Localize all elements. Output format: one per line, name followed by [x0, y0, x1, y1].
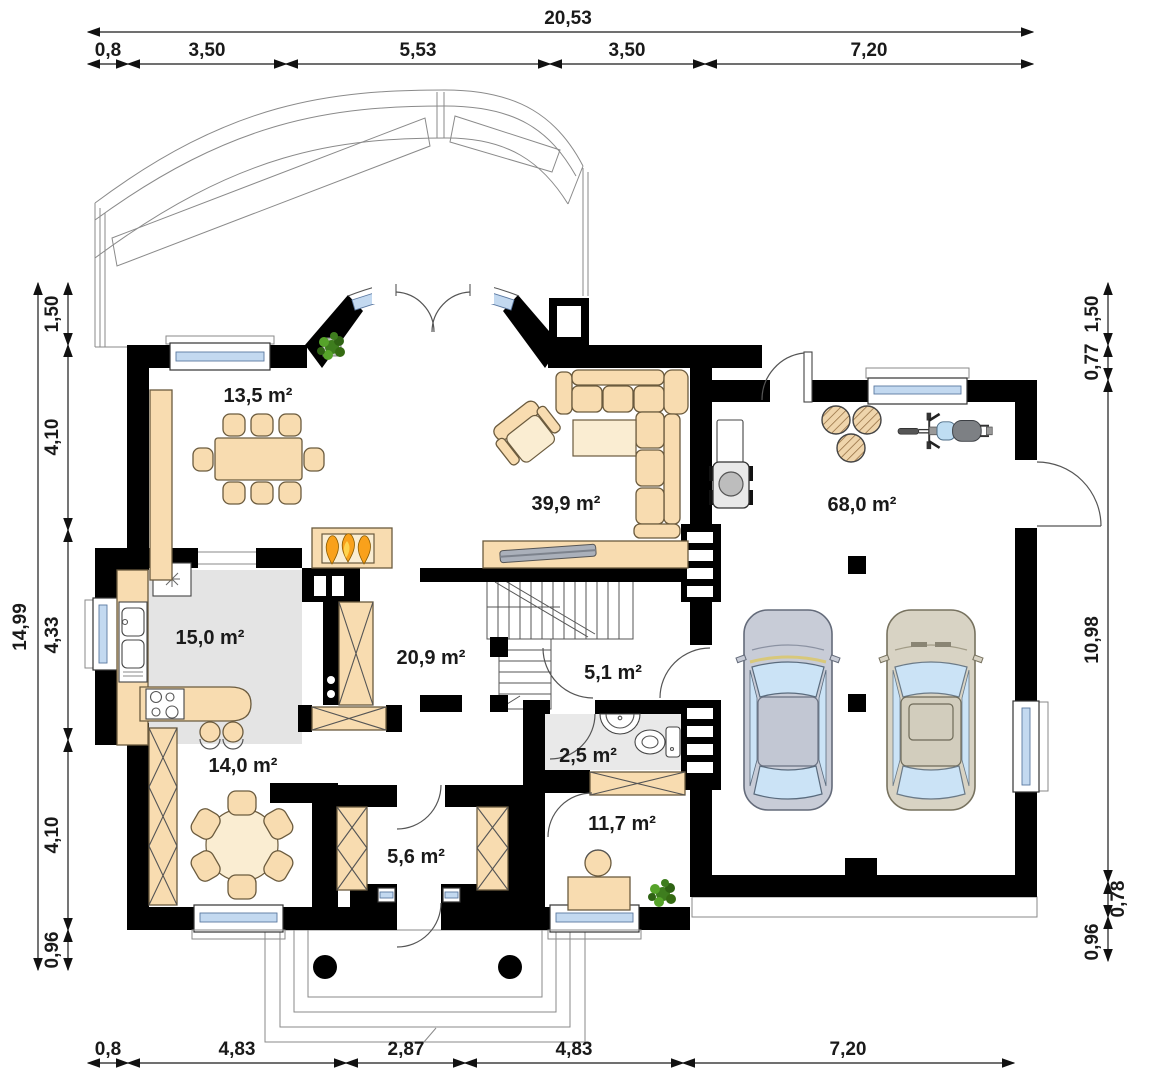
svg-text:0,96: 0,96: [1082, 924, 1103, 961]
window: [85, 598, 119, 670]
svg-text:4,83: 4,83: [219, 1039, 256, 1060]
pergola-roof-edge: [95, 90, 583, 266]
lawn-mower: [709, 420, 753, 508]
chair: [193, 448, 213, 471]
window: [866, 368, 969, 404]
svg-text:7,20: 7,20: [851, 40, 888, 61]
svg-text:3,50: 3,50: [609, 40, 646, 61]
svg-text:0,77: 0,77: [1082, 344, 1103, 381]
svg-text:5,53: 5,53: [400, 40, 437, 61]
floor-plan-svg: 13,5 m² 39,9 m² 68,0 m² 15,0 m² 20,9 m² …: [0, 0, 1158, 1080]
coffee-table: [573, 420, 636, 456]
chair: [279, 414, 301, 436]
dimensions-right: 1,50 0,77 10,98 0,78 0,96: [1082, 283, 1129, 961]
kitchen-peninsula: [140, 687, 251, 721]
sidelight-window: [378, 888, 395, 902]
dimensions-top: 20,53 0,8 3,50 5,53 3,50 7,20: [88, 8, 1033, 64]
chair: [251, 414, 273, 436]
wardrobe: [590, 772, 685, 795]
room-label-dining: 13,5 m²: [224, 385, 293, 407]
garage-column: [848, 694, 866, 712]
wardrobe: [337, 807, 367, 890]
svg-text:2,87: 2,87: [388, 1039, 425, 1060]
svg-text:1,50: 1,50: [1082, 296, 1103, 333]
garage-exterior-door: [1037, 462, 1101, 526]
bedroom-furniture: [188, 791, 296, 899]
dimensions-left: 14,99 1,50 4,10 4,33 4,10 0,96: [10, 283, 68, 970]
svg-text:4,10: 4,10: [42, 419, 63, 456]
room-label-garage: 68,0 m²: [828, 494, 897, 516]
stool: [200, 722, 220, 742]
room-label-corridor: 5,1 m²: [584, 662, 642, 684]
svg-text:7,20: 7,20: [830, 1039, 867, 1060]
svg-text:0,8: 0,8: [95, 1039, 121, 1060]
svg-text:3,50: 3,50: [189, 40, 226, 61]
chair: [223, 414, 245, 436]
porch-steps: [265, 930, 585, 1042]
wardrobe: [477, 807, 508, 890]
sideboard: [150, 390, 172, 580]
room-label-living: 39,9 m²: [532, 493, 601, 515]
car-gray: [736, 610, 840, 810]
kitchen-sink: [119, 602, 147, 682]
motorcycle: [898, 413, 992, 449]
office-furniture: [568, 850, 630, 910]
firewood-stack: [837, 434, 865, 462]
window: [166, 336, 274, 370]
garage-contents: [709, 406, 992, 810]
svg-text:4,10: 4,10: [42, 817, 63, 854]
porch-column: [313, 955, 337, 979]
dim-top-total: 20,53: [544, 8, 592, 29]
svg-text:0,96: 0,96: [42, 932, 63, 969]
room-label-office: 11,7 m²: [588, 813, 656, 835]
plant-icon: [648, 879, 676, 907]
chair: [228, 791, 256, 815]
svg-text:1,50: 1,50: [42, 296, 63, 333]
garage-column: [848, 556, 866, 574]
armchair: [487, 395, 565, 471]
stool: [223, 722, 243, 742]
chair: [223, 482, 245, 504]
garage-side-door: [660, 648, 710, 698]
window: [1013, 701, 1048, 792]
room-label-hall: 20,9 m²: [397, 647, 466, 669]
floor-plan-canvas: 13,5 m² 39,9 m² 68,0 m² 15,0 m² 20,9 m² …: [0, 0, 1158, 1080]
stairs: [487, 577, 633, 709]
chair: [228, 875, 256, 899]
room-label-wc: 2,5 m²: [559, 745, 617, 767]
room-label-bedroom: 14,0 m²: [209, 755, 278, 777]
svg-text:0,8: 0,8: [95, 40, 121, 61]
window: [192, 905, 285, 939]
chair: [251, 482, 273, 504]
svg-text:0,78: 0,78: [1108, 881, 1129, 918]
office-door: [548, 793, 592, 837]
svg-text:4,33: 4,33: [42, 617, 63, 654]
car-beige: [879, 610, 983, 810]
vestibule-door: [397, 785, 441, 829]
duct-shaft: [312, 707, 386, 730]
firewood-stack: [822, 406, 850, 434]
dining-table: [215, 438, 302, 480]
duct-shaft: [339, 602, 373, 705]
dimensions-bottom: 0,8 4,83 2,87 4,83 7,20: [88, 1039, 1014, 1063]
dim-left-total: 14,99: [10, 603, 31, 651]
svg-text:10,98: 10,98: [1082, 616, 1103, 664]
toilet: [635, 727, 680, 757]
sidelight-window: [443, 888, 460, 902]
living-furniture: [483, 370, 688, 568]
wardrobe: [149, 728, 177, 905]
garage-apron: [692, 897, 1037, 917]
room-label-vestibule: 5,6 m²: [387, 846, 445, 868]
flame-icon: [326, 534, 370, 564]
fireplace: [312, 528, 392, 568]
chair: [279, 482, 301, 504]
svg-text:4,83: 4,83: [556, 1039, 593, 1060]
chair: [304, 448, 324, 471]
porch-column: [498, 955, 522, 979]
entry-door: [397, 903, 441, 947]
desk: [568, 877, 630, 910]
firewood-stack: [853, 406, 881, 434]
room-label-kitchen: 15,0 m²: [176, 627, 245, 649]
